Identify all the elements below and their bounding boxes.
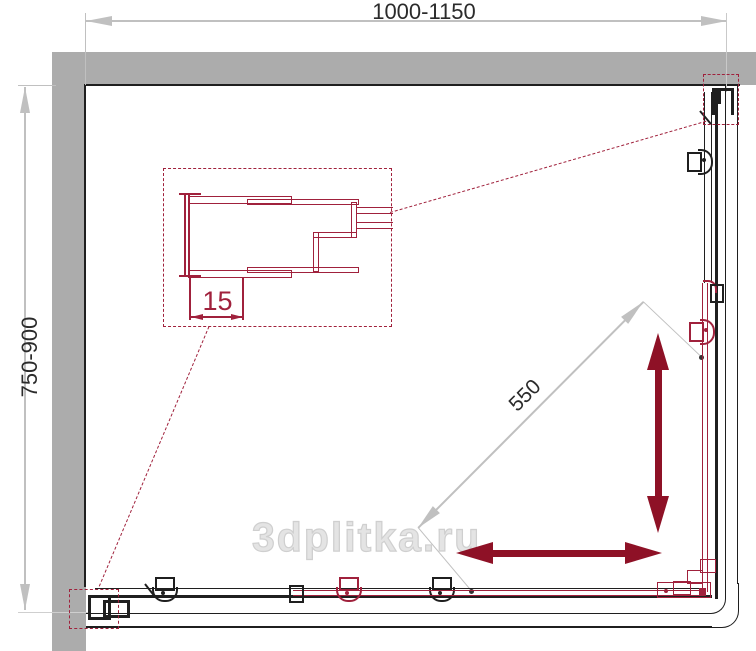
vertical-slide-arrow-down-icon [647,496,669,533]
top-dimension-extension-left [85,13,86,85]
horizontal-slide-arrow-left-icon [456,542,493,564]
profile-step-horizontal [313,232,357,238]
right-roller-dot [702,158,706,162]
profile-insert-bar-1 [356,207,393,214]
corner-bracket-dot [664,589,668,593]
left-wall-inner-edge [84,84,86,587]
profile-adjustment-label: 15 [190,288,245,315]
dim-arrow-right-icon [701,16,727,26]
top-wall [52,52,756,85]
profile-insert-bar-2 [356,222,393,229]
watermark: 3dplitka.ru [252,517,481,558]
right-fixed-glass-line [715,88,718,599]
right-door-clamp [700,319,715,345]
profile-left-bar-cap-top [179,193,201,195]
left-dimension-extension-top [18,85,56,86]
bottom-door-clamp [336,587,362,602]
vertical-slide-arrow-shaft [655,368,662,498]
bottom-door-roller-dot [345,591,349,595]
tray-outer-line-horizontal [86,626,712,628]
left-wall [52,52,86,651]
right-door-end-cap [710,284,724,303]
depth-dimension-label: 750-900 [19,287,41,427]
tray-inner-line-horizontal [86,613,703,614]
dim-arrow-down-icon [20,584,30,610]
technical-drawing: 3dplitka.ru 1000-1150 750-900 550 [0,0,756,651]
diagonal-entry-label: 550 [475,346,575,446]
diagonal-dimension-line [417,301,643,528]
tray-outer-line-vertical [737,85,739,584]
callout-leader-top [390,121,706,213]
top-wall-inner-edge [86,84,740,86]
profile-top-plate [247,199,359,205]
horizontal-slide-arrow-shaft [491,550,627,557]
profile-bottom-plate [247,267,359,273]
bottom-door-end-cap [289,585,304,603]
profile-step-vertical-2 [313,232,319,272]
callout-leader-bottom [99,326,210,586]
profile-insert-connector [356,208,358,227]
horizontal-slide-arrow-right-icon [625,542,662,564]
corner-door-joint [699,588,706,595]
width-dimension-label: 1000-1150 [299,1,549,23]
bottom-roller-clamp-1 [152,587,178,602]
vertical-slide-arrow-up-icon [647,333,669,370]
right-door-roller-dot [704,328,708,332]
callout-box-top-right [703,74,739,125]
dim-arrow-left-icon [86,16,112,26]
bottom-roller-dot-1 [161,591,165,595]
profile-left-bar [184,194,190,277]
callout-box-bottom-left [69,589,119,629]
dim-arrow-up-icon [20,87,30,113]
tray-inner-line-vertical [725,85,726,575]
